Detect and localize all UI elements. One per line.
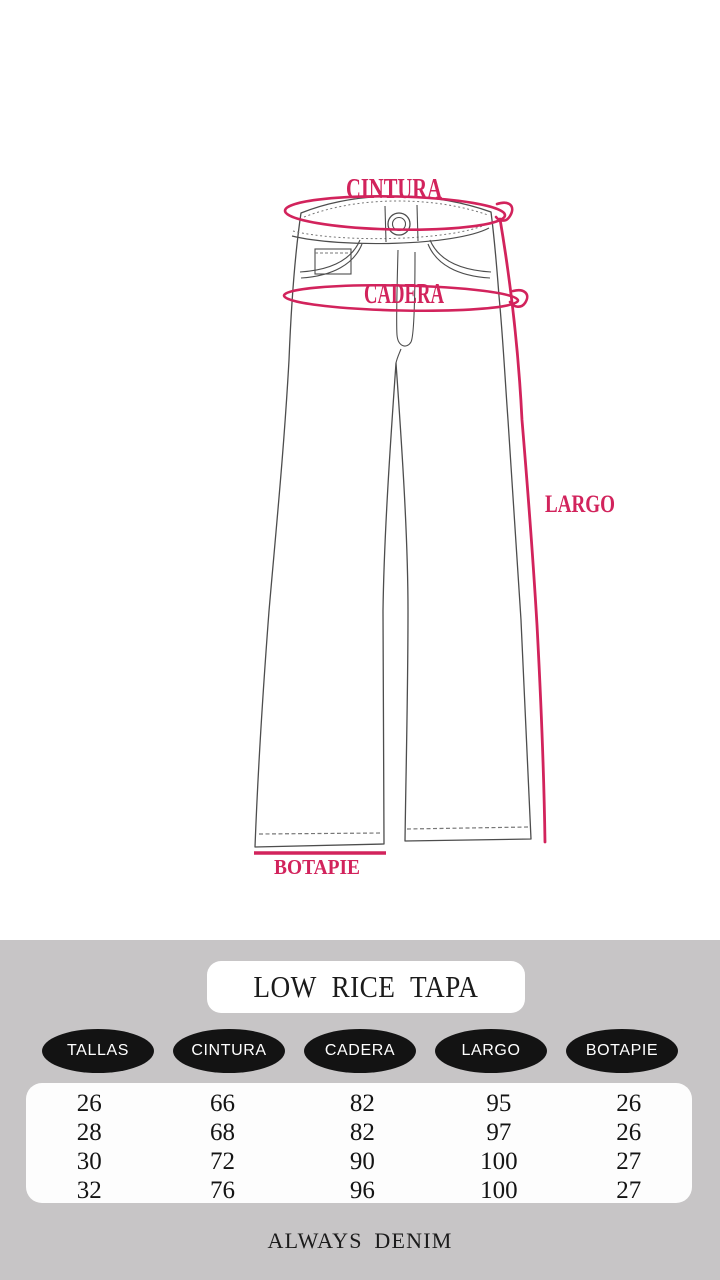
column-header-label: LARGO	[461, 1042, 520, 1060]
column-header-label: TALLAS	[67, 1042, 129, 1060]
table-row: 32 76 96 100 27	[26, 1176, 692, 1205]
size-cell: 95	[432, 1090, 565, 1118]
column-header-row: TALLAS CINTURA CADERA LARGO BOTAPIE	[42, 1029, 678, 1073]
size-cell: 76	[153, 1177, 293, 1205]
size-cell: 66	[153, 1090, 293, 1118]
size-cell: 82	[292, 1090, 432, 1118]
waist-label: CINTURA	[346, 173, 442, 205]
column-header-cadera: CADERA	[304, 1029, 416, 1073]
table-row: 28 68 82 97 26	[26, 1118, 692, 1147]
leg-opening-label: BOTAPIE	[274, 855, 360, 879]
column-header-label: BOTAPIE	[586, 1042, 658, 1060]
length-label: LARGO	[545, 491, 615, 518]
chart-title: LOW RICE TAPA	[253, 969, 478, 1005]
column-header-largo: LARGO	[435, 1029, 547, 1073]
size-cell: 26	[26, 1090, 153, 1118]
size-cell: 32	[26, 1177, 153, 1205]
size-guide-page: CINTURA CADERA LARGO BOTAPIE LOW RICE TA…	[0, 0, 720, 1280]
size-cell: 82	[292, 1119, 432, 1147]
size-cell: 27	[565, 1177, 692, 1205]
size-cell: 26	[565, 1119, 692, 1147]
size-table: 26 66 82 95 26 28 68 82 97 26 30 72 90 1…	[26, 1083, 692, 1203]
size-cell: 27	[565, 1148, 692, 1176]
size-cell: 30	[26, 1148, 153, 1176]
chart-title-pill: LOW RICE TAPA	[207, 961, 525, 1013]
table-row: 30 72 90 100 27	[26, 1147, 692, 1176]
size-cell: 100	[432, 1177, 565, 1205]
hip-label: CADERA	[364, 278, 444, 310]
size-cell: 100	[432, 1148, 565, 1176]
pants-technical-drawing: CINTURA CADERA LARGO BOTAPIE	[0, 0, 720, 940]
size-chart-panel: LOW RICE TAPA TALLAS CINTURA CADERA LARG…	[0, 940, 720, 1280]
column-header-label: CINTURA	[191, 1042, 266, 1060]
column-header-label: CADERA	[325, 1042, 395, 1060]
column-header-tallas: TALLAS	[42, 1029, 154, 1073]
size-cell: 28	[26, 1119, 153, 1147]
waist-button-icon	[388, 213, 410, 235]
brand-footer: ALWAYS DENIM	[0, 1228, 720, 1254]
column-header-botapie: BOTAPIE	[566, 1029, 678, 1073]
size-cell: 96	[292, 1177, 432, 1205]
size-cell: 72	[153, 1148, 293, 1176]
size-cell: 90	[292, 1148, 432, 1176]
table-row: 26 66 82 95 26	[26, 1089, 692, 1118]
column-header-cintura: CINTURA	[173, 1029, 285, 1073]
size-cell: 68	[153, 1119, 293, 1147]
size-cell: 26	[565, 1090, 692, 1118]
size-cell: 97	[432, 1119, 565, 1147]
